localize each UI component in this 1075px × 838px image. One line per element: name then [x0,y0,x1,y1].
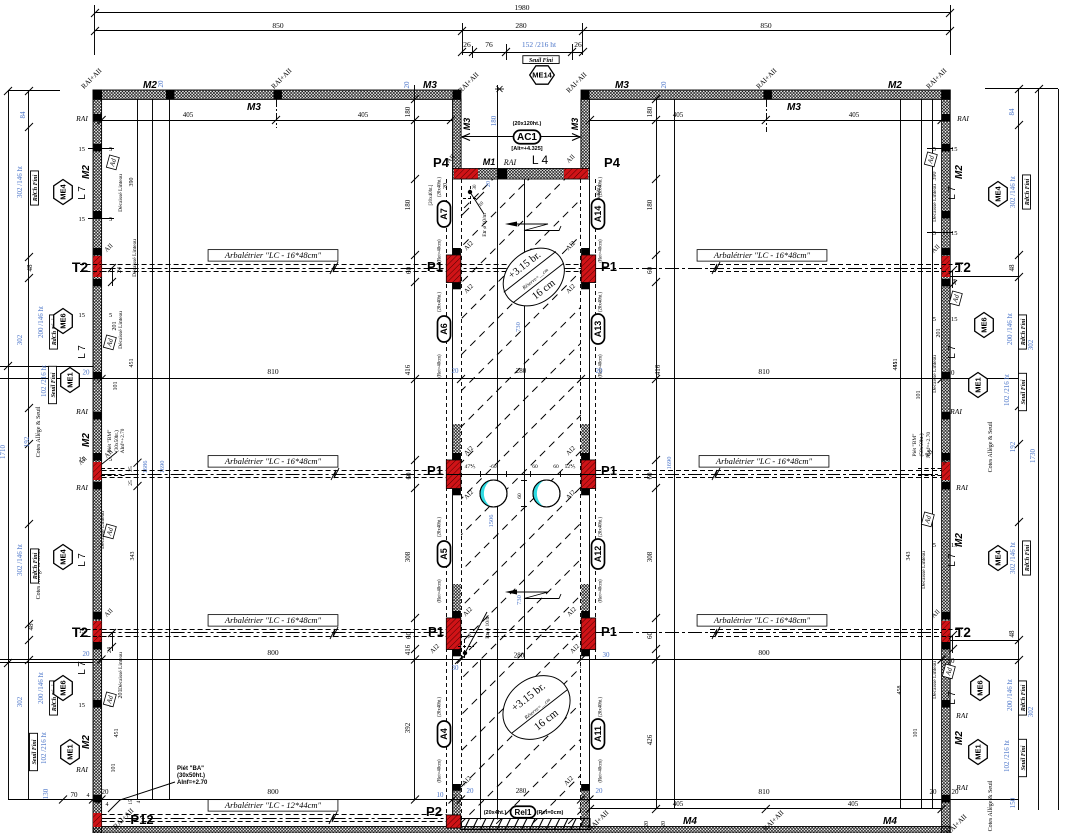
svg-text:343: 343 [906,552,912,561]
svg-text:RAI: RAI [949,407,962,416]
svg-text:(20x40ht.): (20x40ht.) [438,292,443,313]
svg-text:101: 101 [913,729,919,738]
svg-text:810: 810 [758,787,770,796]
svg-text:ME1: ME1 [974,377,983,392]
svg-text:20: 20 [102,788,110,796]
svg-text:RAI: RAI [955,711,968,720]
svg-text:ME6: ME6 [980,317,989,332]
svg-text:20: 20 [443,183,449,189]
svg-text:1690: 1690 [666,457,673,470]
svg-text:M3: M3 [570,118,580,131]
svg-text:Décaissé Linteau: Décaissé Linteau [118,174,124,212]
svg-text:60: 60 [646,267,654,275]
svg-text:15: 15 [79,312,86,319]
svg-text:L 7: L 7 [947,345,958,359]
svg-text:102 /216 ht: 102 /216 ht [40,732,48,764]
svg-text:RdCh Fini: RdCh Fini [33,174,39,202]
svg-text:201: 201 [936,329,942,338]
svg-text:302 /146 ht: 302 /146 ht [16,544,24,576]
svg-text:P1: P1 [601,463,617,478]
svg-text:M2: M2 [81,165,92,179]
svg-text:M2: M2 [81,735,92,749]
svg-text:200 /146 ht: 200 /146 ht [1006,313,1014,345]
svg-text:Décaissé Linteau: Décaissé Linteau [921,551,927,589]
svg-text:RAI: RAI [75,114,88,123]
svg-text:M2: M2 [954,165,965,179]
svg-text:M2: M2 [143,80,157,91]
svg-text:L 7: L 7 [77,345,88,359]
svg-text:T2: T2 [72,624,89,640]
svg-text:A4: A4 [439,728,449,740]
svg-text:810: 810 [267,367,279,376]
svg-text:26: 26 [463,40,471,49]
svg-text:ME4: ME4 [59,548,68,564]
svg-text:ME6: ME6 [976,680,985,695]
svg-text:RAI: RAI [75,483,88,492]
svg-text:52⅕: 52⅕ [565,464,577,470]
svg-text:Seuil Fini: Seuil Fini [1021,379,1027,404]
svg-text:(Ret=40cm): (Ret=40cm) [438,354,443,378]
svg-text:Seuil Fini: Seuil Fini [529,58,553,64]
svg-text:RdCh Fini: RdCh Fini [1021,318,1027,346]
svg-text:20: 20 [83,369,91,377]
svg-text:20: 20 [948,369,956,377]
svg-text:60: 60 [405,472,413,480]
svg-text:102 /216 ht: 102 /216 ht [1003,740,1011,772]
svg-text:390: 390 [932,172,938,181]
svg-text:302 /146 ht: 302 /146 ht [1009,542,1017,574]
svg-text:70: 70 [71,791,79,799]
svg-text:Décaissé Linteau: Décaissé Linteau [118,652,124,690]
svg-text:192: 192 [1009,441,1017,452]
svg-text:280: 280 [514,652,525,660]
svg-text:180: 180 [404,199,412,210]
svg-text:L 7: L 7 [947,186,958,200]
svg-text:200 /146 ht: 200 /146 ht [1006,679,1014,711]
svg-text:84: 84 [19,111,27,119]
svg-text:20: 20 [948,657,956,665]
svg-text:102 /216 ht: 102 /216 ht [1003,374,1011,406]
svg-text:ME4: ME4 [994,185,1003,201]
svg-text:Décaissé Linteau: Décaissé Linteau [932,661,938,699]
svg-text:302: 302 [1027,706,1035,717]
svg-text:15: 15 [79,146,86,153]
svg-text:200 /146 ht: 200 /146 ht [37,306,45,338]
svg-text:416: 416 [404,364,412,375]
svg-text:(30x50ht.): (30x50ht.) [113,430,120,452]
svg-text:15: 15 [951,146,958,153]
svg-text:1730: 1730 [1029,449,1037,464]
svg-text:15: 15 [79,456,86,463]
svg-text:A5: A5 [439,548,449,560]
svg-text:L 4: L 4 [532,153,549,167]
svg-text:850: 850 [760,21,772,30]
svg-text:800: 800 [267,787,279,796]
svg-text:850: 850 [272,21,284,30]
svg-text:Décaissé Linteau: Décaissé Linteau [118,311,124,349]
svg-text:60: 60 [405,267,413,275]
svg-text:302: 302 [16,696,24,707]
svg-text:M3: M3 [247,102,261,113]
svg-text:AInf=+2.70: AInf=+2.70 [177,780,208,786]
svg-text:(20x4ht.): (20x4ht.) [484,810,507,816]
svg-text:20: 20 [644,821,650,827]
svg-text:(Ret=0cm): (Ret=0cm) [537,810,564,816]
svg-text:L 7: L 7 [77,661,88,675]
svg-text:Arbalétrier "LC - 16*48cm": Arbalétrier "LC - 16*48cm" [713,250,811,260]
svg-text:Seuil Fini: Seuil Fini [1021,745,1027,770]
svg-text:RdCh Fini: RdCh Fini [33,552,39,580]
svg-text:M2: M2 [954,533,965,547]
svg-text:810: 810 [758,367,770,376]
svg-text:458: 458 [897,686,903,695]
svg-text:P12: P12 [130,812,153,827]
svg-text:405: 405 [673,111,684,119]
svg-text:M4: M4 [883,816,897,827]
svg-text:P2: P2 [426,804,442,819]
svg-text:(Ret=40cm): (Ret=40cm) [599,579,604,603]
svg-text:730: 730 [515,322,522,332]
svg-text:308: 308 [404,551,412,562]
svg-text:405: 405 [183,111,194,119]
svg-text:48: 48 [26,264,34,272]
svg-text:Décaissé Linteau: Décaissé Linteau [932,184,938,222]
svg-text:192: 192 [23,436,31,447]
svg-text:P1: P1 [601,624,617,639]
svg-text:48: 48 [1008,264,1016,272]
svg-text:L 7: L 7 [947,691,958,705]
svg-text:60: 60 [517,493,523,499]
svg-text:302 /146 ht: 302 /146 ht [1009,176,1017,208]
svg-text:(20x40ht.): (20x40ht.) [599,697,604,718]
svg-text:A7: A7 [439,208,449,220]
svg-text:15: 15 [79,216,86,223]
svg-text:RAI: RAI [75,407,88,416]
svg-text:405: 405 [849,111,860,119]
svg-text:(20x40ht.): (20x40ht.) [438,177,443,198]
svg-text:60: 60 [646,632,654,640]
svg-text:ME1: ME1 [66,744,75,759]
svg-text:Cotes Allège & Seuil: Cotes Allège & Seuil [988,780,994,831]
svg-text:A11: A11 [593,726,603,742]
svg-text:25: 25 [128,466,134,472]
svg-text:Piét "BM": Piét "BM" [912,434,918,457]
svg-text:Arbalétrier "LC - 16*48cm": Arbalétrier "LC - 16*48cm" [224,250,322,260]
svg-text:RAI: RAI [955,783,968,792]
svg-text:(30x50ht.): (30x50ht.) [177,773,205,779]
svg-text:60: 60 [553,464,559,470]
svg-text:20: 20 [486,181,492,187]
svg-text:451: 451 [114,729,120,738]
svg-text:101: 101 [111,764,117,773]
svg-text:405: 405 [848,800,859,808]
svg-text:405: 405 [358,111,369,119]
svg-text:101: 101 [916,391,922,400]
svg-text:Décaissé Linteau: Décaissé Linteau [932,355,938,393]
svg-text:RdCh Fini: RdCh Fini [1021,684,1027,712]
svg-text:5: 5 [933,146,936,153]
svg-text:24: 24 [117,267,123,273]
svg-text:ME1: ME1 [66,372,75,387]
svg-text:A13: A13 [593,321,603,338]
svg-text:RdCh Fini: RdCh Fini [1025,544,1031,572]
svg-text:Seuil Fini: Seuil Fini [32,739,38,764]
svg-text:4: 4 [106,802,109,808]
svg-text:L 7: L 7 [77,186,88,200]
svg-text:280: 280 [516,367,527,375]
svg-text:60: 60 [532,464,538,470]
svg-text:5: 5 [933,230,936,237]
svg-text:1686: 1686 [142,460,149,474]
svg-text:T2: T2 [72,259,89,275]
svg-text:15: 15 [79,702,86,709]
svg-text:Piét "BA": Piét "BA" [177,766,204,772]
svg-text:ME4: ME4 [59,183,68,199]
svg-text:Rel1: Rel1 [515,808,532,817]
svg-text:102 /216 ht: 102 /216 ht [40,365,48,397]
svg-text:RAI: RAI [75,765,88,774]
svg-text:P1: P1 [427,463,443,478]
svg-text:201: 201 [118,690,124,699]
svg-text:M2: M2 [888,80,902,91]
svg-text:ME14: ME14 [532,71,552,80]
svg-text:Arbalétrier "LC - 12*44cm": Arbalétrier "LC - 12*44cm" [224,800,322,810]
svg-text:5: 5 [109,216,112,223]
svg-text:Cotes Allège & Seuil: Cotes Allège & Seuil [36,406,42,457]
svg-text:RAI: RAI [955,483,968,492]
svg-text:(20x40ht.): (20x40ht.) [599,292,604,313]
svg-text:P1: P1 [428,624,444,639]
svg-text:[20x40ht.]: [20x40ht.] [429,184,434,205]
svg-text:-60: -60 [489,464,497,470]
svg-text:390: 390 [129,178,135,187]
svg-text:Arbalétrier "LC - 16*48cm": Arbalétrier "LC - 16*48cm" [713,615,811,625]
svg-text:20: 20 [596,787,604,795]
svg-text:76: 76 [485,40,493,49]
svg-text:1690: 1690 [159,461,166,474]
svg-text:47⅕: 47⅕ [465,464,477,470]
svg-text:Etr ø 10/m: Etr ø 10/m [485,615,491,639]
svg-text:4: 4 [579,806,582,812]
svg-text:20: 20 [83,650,91,658]
svg-text:(20x40ht.): (20x40ht.) [599,177,604,198]
svg-text:302: 302 [16,334,24,345]
svg-text:(Ret=40cm): (Ret=40cm) [438,579,443,603]
svg-text:ME1: ME1 [974,744,983,759]
svg-text:A12: A12 [593,546,603,563]
svg-text:[Alt=+4.325]: [Alt=+4.325] [511,146,542,152]
svg-text:M2: M2 [81,433,92,447]
svg-text:AC1: AC1 [517,132,537,143]
svg-text:M3: M3 [462,118,472,131]
svg-text:(20x40ht.): (20x40ht.) [599,517,604,538]
svg-text:ME6: ME6 [59,680,68,695]
svg-text:20: 20 [660,81,668,89]
svg-text:RdCh Fini: RdCh Fini [1025,178,1031,206]
svg-text:20: 20 [452,367,460,375]
svg-text:15: 15 [951,230,958,237]
svg-text:302: 302 [1027,339,1035,350]
svg-text:5: 5 [109,312,112,319]
svg-text:20: 20 [661,821,667,827]
svg-text:M3: M3 [615,80,629,91]
svg-text:1506: 1506 [488,514,495,528]
svg-text:30: 30 [603,651,611,659]
svg-text:30: 30 [452,664,460,672]
svg-text:451: 451 [893,359,899,368]
svg-text:416: 416 [404,644,412,655]
svg-text:20: 20 [596,367,604,375]
svg-text:392: 392 [404,722,412,733]
svg-text:Arbalétrier "LC - 16*48cm": Arbalétrier "LC - 16*48cm" [224,615,322,625]
svg-text:308: 308 [646,551,654,562]
svg-text:405: 405 [673,800,684,808]
svg-text:152 /216 ht: 152 /216 ht [522,40,557,49]
svg-text:84: 84 [1008,108,1016,116]
svg-text:150: 150 [1009,797,1017,808]
svg-text:730: 730 [516,595,523,605]
svg-text:Décaissé Linteau: Décaissé Linteau [132,239,138,277]
svg-text:200 /146 ht: 200 /146 ht [37,672,45,704]
svg-text:60: 60 [646,472,654,480]
svg-text:101: 101 [113,382,119,391]
svg-text:(20x40ht.): (20x40ht.) [438,697,443,718]
svg-text:M3: M3 [423,80,437,91]
svg-text:AInf=+2.70: AInf=+2.70 [925,432,932,458]
svg-text:Arbalétrier "LC - 16*48cm": Arbalétrier "LC - 16*48cm" [224,456,322,466]
svg-text:30: 30 [473,184,478,190]
svg-text:15: 15 [129,799,134,805]
svg-text:Piét "BM": Piét "BM" [107,430,113,453]
svg-text:280: 280 [515,21,527,30]
svg-text:302 /146 ht: 302 /146 ht [16,166,24,198]
svg-text:(Ret=40cm): (Ret=40cm) [438,239,443,263]
svg-text:RAI: RAI [956,114,969,123]
svg-text:T2: T2 [955,260,971,275]
svg-text:5: 5 [933,542,936,549]
svg-text:(Ret=40cm): (Ret=40cm) [599,239,604,263]
svg-text:20: 20 [403,81,411,89]
svg-text:25: 25 [128,480,134,486]
svg-text:ME6: ME6 [59,313,68,328]
svg-text:130: 130 [42,788,50,799]
svg-text:ME4: ME4 [994,549,1003,565]
svg-text:5: 5 [109,456,112,463]
svg-text:Etr ø 10/m: Etr ø 10/m [482,213,488,237]
svg-text:P4: P4 [604,155,621,170]
svg-text:5: 5 [933,316,936,323]
svg-text:180: 180 [490,115,498,126]
svg-text:280: 280 [516,787,527,795]
svg-text:(20x40ht.): (20x40ht.) [438,517,443,538]
svg-text:L 7: L 7 [947,553,958,567]
svg-text:20: 20 [930,788,938,796]
svg-text:(Ret=40cm): (Ret=40cm) [438,759,443,783]
svg-text:T2: T2 [955,625,971,640]
svg-text:Seuil Fini: Seuil Fini [51,372,57,397]
svg-text:416: 416 [654,364,662,375]
svg-text:(20x120ht.): (20x120ht.) [513,121,542,127]
svg-text:(Ret=40cm): (Ret=40cm) [599,759,604,783]
svg-text:60: 60 [405,632,413,640]
svg-text:48: 48 [1008,630,1016,638]
svg-text:180: 180 [646,199,654,210]
svg-text:(50x50ht.): (50x50ht.) [918,433,925,456]
svg-text:800: 800 [758,648,770,657]
svg-text:10: 10 [437,791,445,799]
svg-text:5: 5 [109,146,112,153]
svg-text:800: 800 [267,648,279,657]
svg-text:426: 426 [646,734,654,745]
svg-text:L 7: L 7 [77,553,88,567]
svg-text:M4: M4 [683,816,697,827]
svg-text:RAI: RAI [503,158,517,167]
svg-text:15: 15 [951,316,958,323]
svg-text:AInf=+2.70: AInf=+2.70 [119,428,126,453]
svg-text:1980: 1980 [515,3,530,12]
svg-text:4: 4 [87,793,90,799]
svg-text:M2: M2 [954,731,965,745]
svg-text:20: 20 [157,80,165,88]
svg-text:Arbalétrier "LC - 16*48cm": Arbalétrier "LC - 16*48cm" [715,456,813,466]
svg-text:1710: 1710 [0,445,7,460]
svg-text:26: 26 [574,40,582,49]
svg-text:M1: M1 [483,157,496,167]
svg-text:A14: A14 [593,206,603,223]
svg-text:180: 180 [646,106,654,117]
svg-text:343: 343 [130,552,136,561]
svg-text:M3: M3 [787,102,801,113]
svg-text:451: 451 [129,359,135,368]
svg-text:20: 20 [467,787,475,795]
svg-text:Cotes Allège & Seuil: Cotes Allège & Seuil [988,421,994,472]
svg-text:A6: A6 [439,323,449,335]
svg-text:180: 180 [404,106,412,117]
